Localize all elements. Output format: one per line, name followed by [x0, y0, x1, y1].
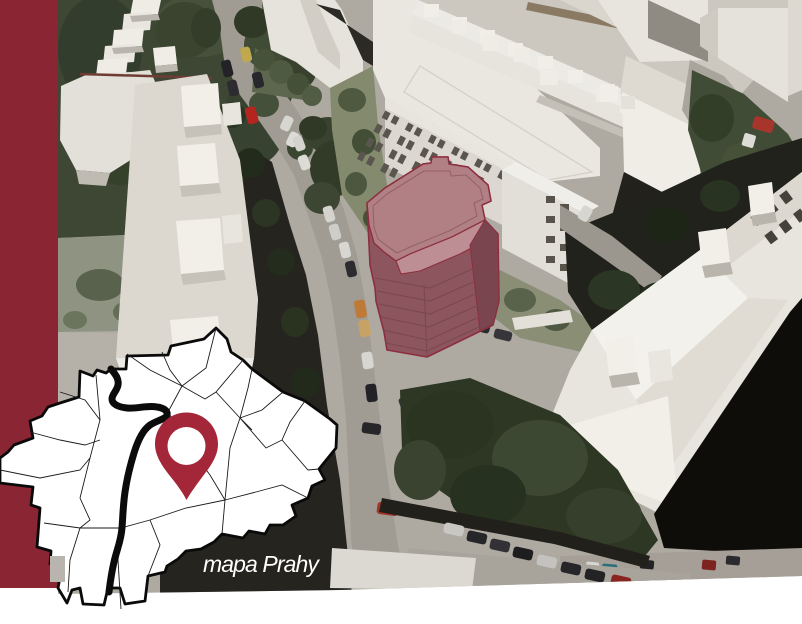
- svg-text:mapa Prahy: mapa Prahy: [203, 551, 320, 577]
